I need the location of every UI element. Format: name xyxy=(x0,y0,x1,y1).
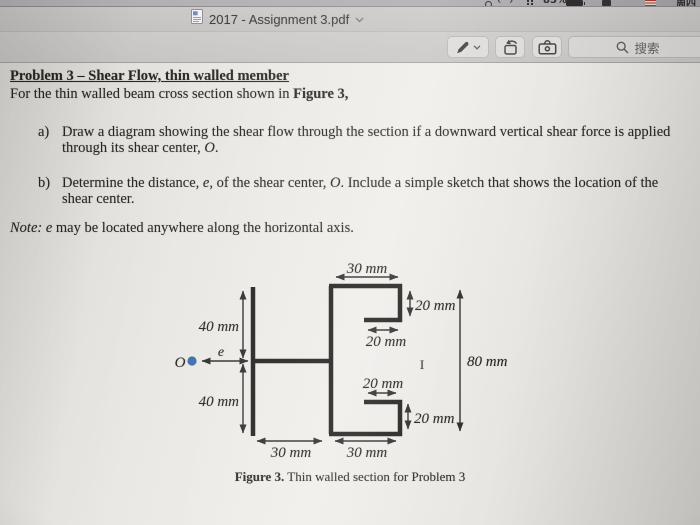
search-placeholder: 搜索 xyxy=(634,38,659,57)
toolbox-icon xyxy=(538,40,557,55)
label-dim-top-flange: 30 mm xyxy=(346,261,388,277)
markup-pen-button[interactable] xyxy=(447,36,489,58)
pdf-page: Problem 3 – Shear Flow, thin walled memb… xyxy=(0,63,700,525)
figure-caption-text: Thin walled section for Problem 3 xyxy=(284,469,465,484)
item-a-shear-center-symbol: O xyxy=(204,140,214,156)
back-chevron-icon: ‹ xyxy=(497,0,501,6)
intro-line: For the thin walled beam cross section s… xyxy=(10,86,348,102)
chevron-down-icon xyxy=(473,45,481,50)
pdf-file-icon xyxy=(191,9,203,29)
battery-percent-label: 85% xyxy=(543,0,567,6)
rotate-left-icon xyxy=(501,38,520,56)
label-dim-bottom-lip: 20 mm xyxy=(414,411,455,427)
intro-figure-ref: Figure 3, xyxy=(293,86,348,102)
macos-menu-bar: ‹ › 85% 周四 xyxy=(0,0,700,6)
text-cursor: I xyxy=(420,357,424,372)
label-dim-bottom-return: 20 mm xyxy=(363,376,404,392)
menu-dots-icon xyxy=(527,0,529,2)
search-field[interactable]: 搜索 xyxy=(568,36,700,58)
label-dim-bottom-left: 30 mm xyxy=(270,445,312,461)
label-dim-total-height: 80 mm xyxy=(467,354,508,370)
item-b-text-3: . Include a simple sketch that shows the… xyxy=(340,175,658,191)
pdf-toolbar: 搜索 xyxy=(0,32,700,63)
title-chevron-down-icon[interactable] xyxy=(355,10,364,28)
item-b-text-2: , of the shear center, xyxy=(209,175,330,191)
label-dim-lower-left: 40 mm xyxy=(199,394,240,410)
shear-center-dot xyxy=(187,356,196,365)
label-dim-top-lip: 20 mm xyxy=(415,298,456,314)
item-b-shear-center-symbol: O xyxy=(330,175,340,191)
label-dim-bottom-right: 30 mm xyxy=(346,445,388,461)
item-a-line2-text: through its shear center, xyxy=(62,140,204,156)
section-bottom-flange-and-lip xyxy=(329,402,400,434)
figure-caption-number: Figure 3. xyxy=(235,469,285,484)
note-italic-part: Note: e xyxy=(10,220,52,236)
menu-status-icon xyxy=(485,1,492,6)
figure-caption: Figure 3. Thin walled section for Proble… xyxy=(0,469,700,485)
marker-pen-icon xyxy=(455,40,470,55)
problem-heading: Problem 3 – Shear Flow, thin walled memb… xyxy=(10,68,289,84)
item-b-text-1: Determine the distance, xyxy=(62,175,203,191)
label-dim-upper-left: 40 mm xyxy=(199,319,240,335)
item-b-marker: b) xyxy=(38,175,50,191)
screen-photo: ‹ › 85% 周四 2017 - Assignment 3.pdf xyxy=(0,0,700,525)
note-text: may be located anywhere along the horizo… xyxy=(52,220,354,236)
figure-3-drawing: 30 mm 20 mm 20 mm 40 mm e O 40 mm 80 mm … xyxy=(0,255,700,485)
item-a-line2-period: . xyxy=(215,140,219,156)
search-icon xyxy=(616,41,629,54)
input-language-flag-icon xyxy=(645,0,656,6)
markup-toolbar-button[interactable] xyxy=(532,36,562,58)
label-eccentricity: e xyxy=(218,345,224,360)
rotate-left-button[interactable] xyxy=(495,36,525,58)
item-b-line1: Determine the distance, e, of the shear … xyxy=(62,175,658,191)
item-a-marker: a) xyxy=(38,124,49,140)
item-b-line2: shear center. xyxy=(62,191,134,207)
menu-weekday-label: 周四 xyxy=(676,0,696,6)
label-dim-top-return: 20 mm xyxy=(366,334,407,350)
battery-icon xyxy=(566,0,583,6)
menu-app-icon xyxy=(602,0,611,6)
section-top-flange-and-lip xyxy=(329,286,400,320)
label-shear-center: O xyxy=(175,355,186,371)
window-title: 2017 - Assignment 3.pdf xyxy=(209,12,349,27)
intro-text: For the thin walled beam cross section s… xyxy=(10,86,293,102)
window-title-bar: 2017 - Assignment 3.pdf xyxy=(0,6,700,32)
forward-chevron-icon: › xyxy=(509,0,513,6)
item-a-line2: through its shear center, O. xyxy=(62,140,218,156)
note-line: Note: e may be located anywhere along th… xyxy=(10,220,354,236)
item-a-line1: Draw a diagram showing the shear flow th… xyxy=(62,124,670,140)
